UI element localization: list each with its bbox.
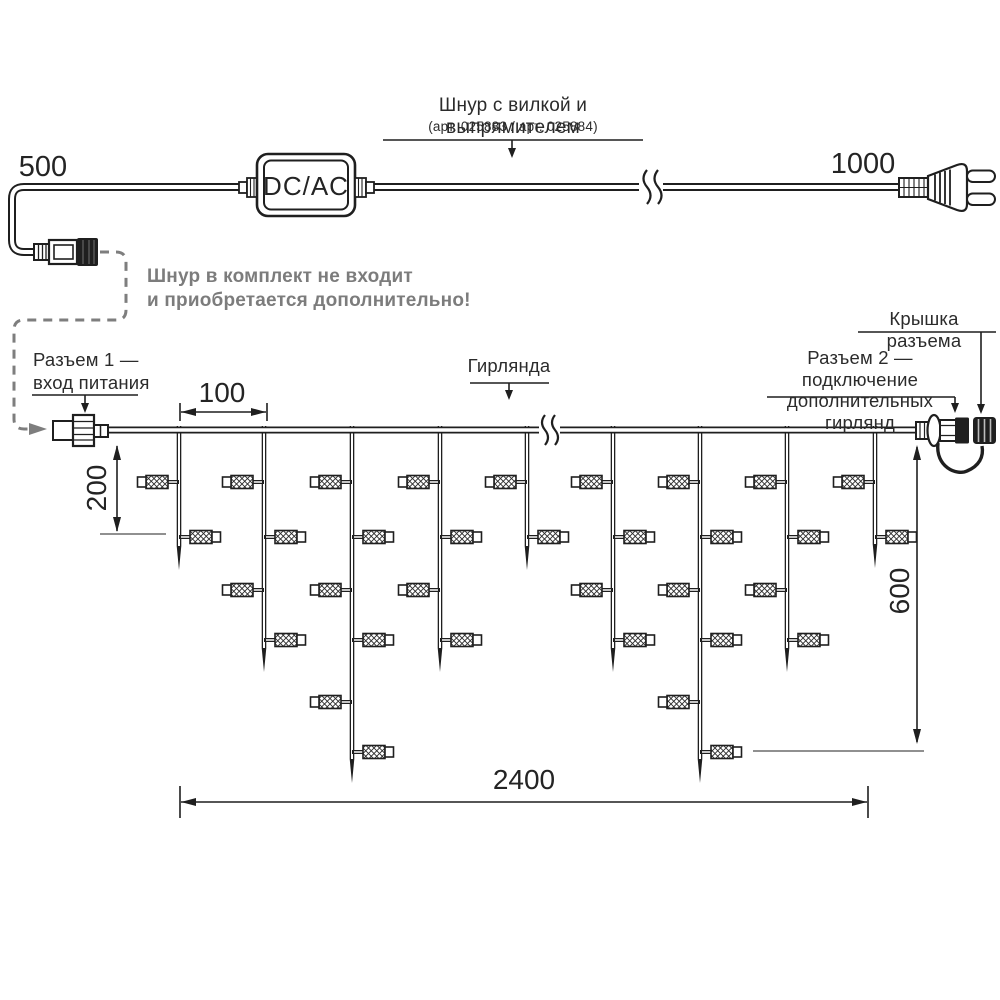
dim-500-label: 500 — [19, 151, 67, 183]
dashed-arrowhead — [29, 423, 47, 435]
icicle-drop — [659, 426, 742, 783]
led-bulb-icon — [572, 476, 614, 489]
led-bulb-icon — [659, 476, 701, 489]
drop-tip — [873, 544, 878, 568]
dc-ac-label: DC/AC — [263, 171, 349, 201]
led-bulb-icon — [179, 531, 221, 544]
led-bulb-icon — [746, 476, 788, 489]
connector1-leader — [32, 395, 138, 413]
connector2-label-line1: Разъем 2 — подключение — [758, 347, 962, 390]
led-bulb-icon — [223, 584, 265, 597]
led-bulb-icon — [352, 531, 394, 544]
led-bulb-icon — [572, 584, 614, 597]
icicle-drop — [486, 426, 569, 570]
led-bulb-icon — [138, 476, 180, 489]
dim-100-label: 100 — [199, 377, 246, 408]
icicle-drop — [399, 426, 482, 672]
drop-tip — [785, 648, 790, 672]
cord-title-leader — [383, 140, 643, 158]
cord-note: Шнур в комплект не входит и приобретаетс… — [147, 265, 471, 313]
garland-label-leader — [470, 383, 549, 400]
led-bulb-icon — [700, 746, 742, 759]
led-bulb-icon — [264, 531, 306, 544]
drop-tip — [525, 546, 530, 570]
dim-2400: 2400 — [180, 764, 868, 818]
led-bulb-icon — [264, 634, 306, 647]
icicle-drop — [572, 426, 655, 672]
connector2-label: Разъем 2 — подключение дополнительных ги… — [758, 347, 962, 433]
led-bulb-icon — [700, 634, 742, 647]
dim-1000-label: 1000 — [831, 148, 896, 180]
led-bulb-icon — [352, 634, 394, 647]
led-bulb-icon — [399, 476, 441, 489]
drop-tip — [177, 546, 182, 570]
drop-tip — [350, 759, 355, 783]
connector-cap-icon — [973, 417, 996, 444]
led-bulb-icon — [659, 584, 701, 597]
led-bulb-icon — [875, 531, 917, 544]
led-bulb-icon — [440, 531, 482, 544]
garland-drops — [138, 426, 917, 783]
connector1-label-line1: Разъем 1 — — [33, 349, 150, 372]
icicle-drop — [311, 426, 394, 783]
cord-note-line2: и приобретается дополнительно! — [147, 289, 471, 313]
led-bulb-icon — [659, 696, 701, 709]
led-bulb-icon — [311, 476, 353, 489]
cap-label: Крышка разъема — [850, 308, 998, 352]
led-bulb-icon — [700, 531, 742, 544]
icicle-drop — [746, 426, 829, 672]
dim-200-label: 200 — [81, 465, 112, 512]
dim-2400-label: 2400 — [493, 764, 555, 795]
led-bulb-icon — [440, 634, 482, 647]
led-bulb-icon — [787, 634, 829, 647]
drop-tip — [698, 759, 703, 783]
dim-600: 600 — [753, 445, 924, 751]
led-bulb-icon — [613, 531, 655, 544]
led-bulb-icon — [834, 476, 876, 489]
garland-label: Гирлянда — [454, 355, 564, 377]
led-bulb-icon — [352, 746, 394, 759]
dim-600-label: 600 — [884, 568, 915, 615]
dim-100: 100 — [180, 377, 267, 421]
led-bulb-icon — [746, 584, 788, 597]
power-plug-icon — [899, 164, 995, 211]
led-bulb-icon — [311, 696, 353, 709]
led-bulb-icon — [311, 584, 353, 597]
diagram-stage: DC/AC — [0, 0, 1000, 1000]
connector2-label-line2: дополнительных гирлянд — [758, 390, 962, 433]
led-bulb-icon — [613, 634, 655, 647]
led-bulb-icon — [486, 476, 528, 489]
cord-articles: (арт. 025883 / арт. 025884) — [372, 119, 654, 134]
icicle-drop — [138, 426, 221, 570]
connector1-label: Разъем 1 — вход питания — [33, 349, 150, 394]
cord-note-line1: Шнур в комплект не входит — [147, 265, 471, 289]
connector1-label-line2: вход питания — [33, 372, 150, 395]
drop-tip — [438, 648, 443, 672]
icicle-drop — [834, 426, 917, 568]
led-bulb-icon — [399, 584, 441, 597]
drop-tip — [611, 648, 616, 672]
cap-lanyard — [938, 443, 983, 472]
garland-break-icon — [539, 415, 560, 445]
led-bulb-icon — [223, 476, 265, 489]
drop-tip — [262, 648, 267, 672]
icicle-drop — [223, 426, 306, 672]
dashed-connection-path — [14, 252, 126, 435]
cord-break-icon — [639, 170, 663, 204]
dc-ac-converter: DC/AC — [239, 154, 374, 216]
led-bulb-icon — [527, 531, 569, 544]
connector-1-icon — [53, 415, 108, 446]
power-cord — [12, 170, 899, 252]
garland-diagram: DC/AC — [0, 0, 1000, 1000]
cord-connector-icon — [34, 238, 98, 266]
dim-200: 200 — [81, 445, 166, 534]
led-bulb-icon — [787, 531, 829, 544]
